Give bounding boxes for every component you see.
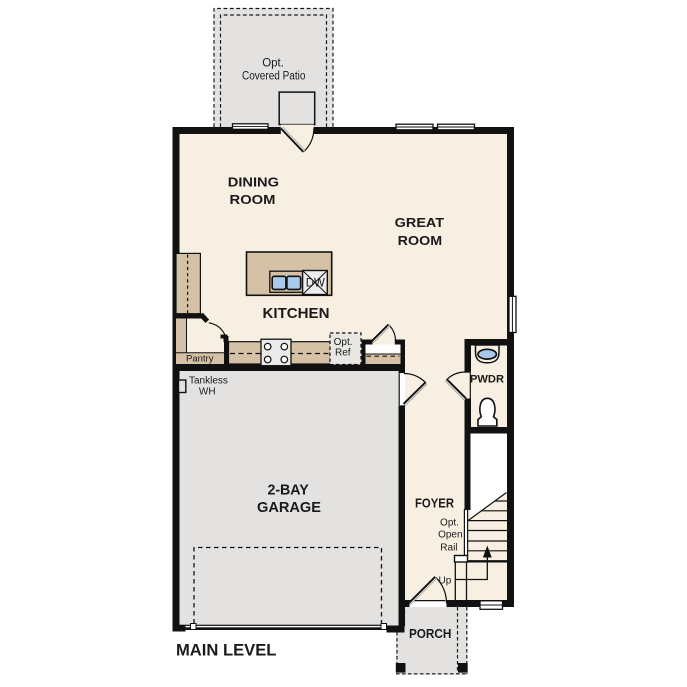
- svg-text:Covered Patio: Covered Patio: [242, 71, 305, 83]
- svg-text:Ref: Ref: [335, 348, 351, 359]
- svg-text:Tankless: Tankless: [189, 376, 228, 387]
- svg-text:Up: Up: [439, 576, 452, 587]
- svg-text:FOYER: FOYER: [415, 495, 455, 510]
- svg-text:DINING: DINING: [228, 176, 279, 190]
- svg-text:Opt.: Opt.: [262, 57, 284, 69]
- svg-text:KITCHEN: KITCHEN: [263, 305, 330, 322]
- svg-text:GARAGE: GARAGE: [257, 499, 321, 516]
- svg-text:DW: DW: [306, 278, 325, 290]
- svg-text:Opt.: Opt.: [440, 517, 459, 528]
- svg-text:ROOM: ROOM: [398, 234, 442, 248]
- svg-text:Open: Open: [438, 530, 462, 541]
- svg-text:2-BAY: 2-BAY: [267, 482, 308, 499]
- svg-text:MAIN LEVEL: MAIN LEVEL: [176, 640, 276, 659]
- svg-text:PORCH: PORCH: [409, 627, 452, 641]
- svg-text:Rail: Rail: [440, 542, 457, 553]
- svg-text:PWDR: PWDR: [470, 373, 504, 385]
- svg-text:Pantry: Pantry: [186, 353, 214, 364]
- svg-text:WH: WH: [199, 387, 216, 398]
- svg-text:ROOM: ROOM: [230, 193, 276, 207]
- svg-text:GREAT: GREAT: [395, 216, 445, 230]
- svg-text:Opt.: Opt.: [334, 337, 353, 348]
